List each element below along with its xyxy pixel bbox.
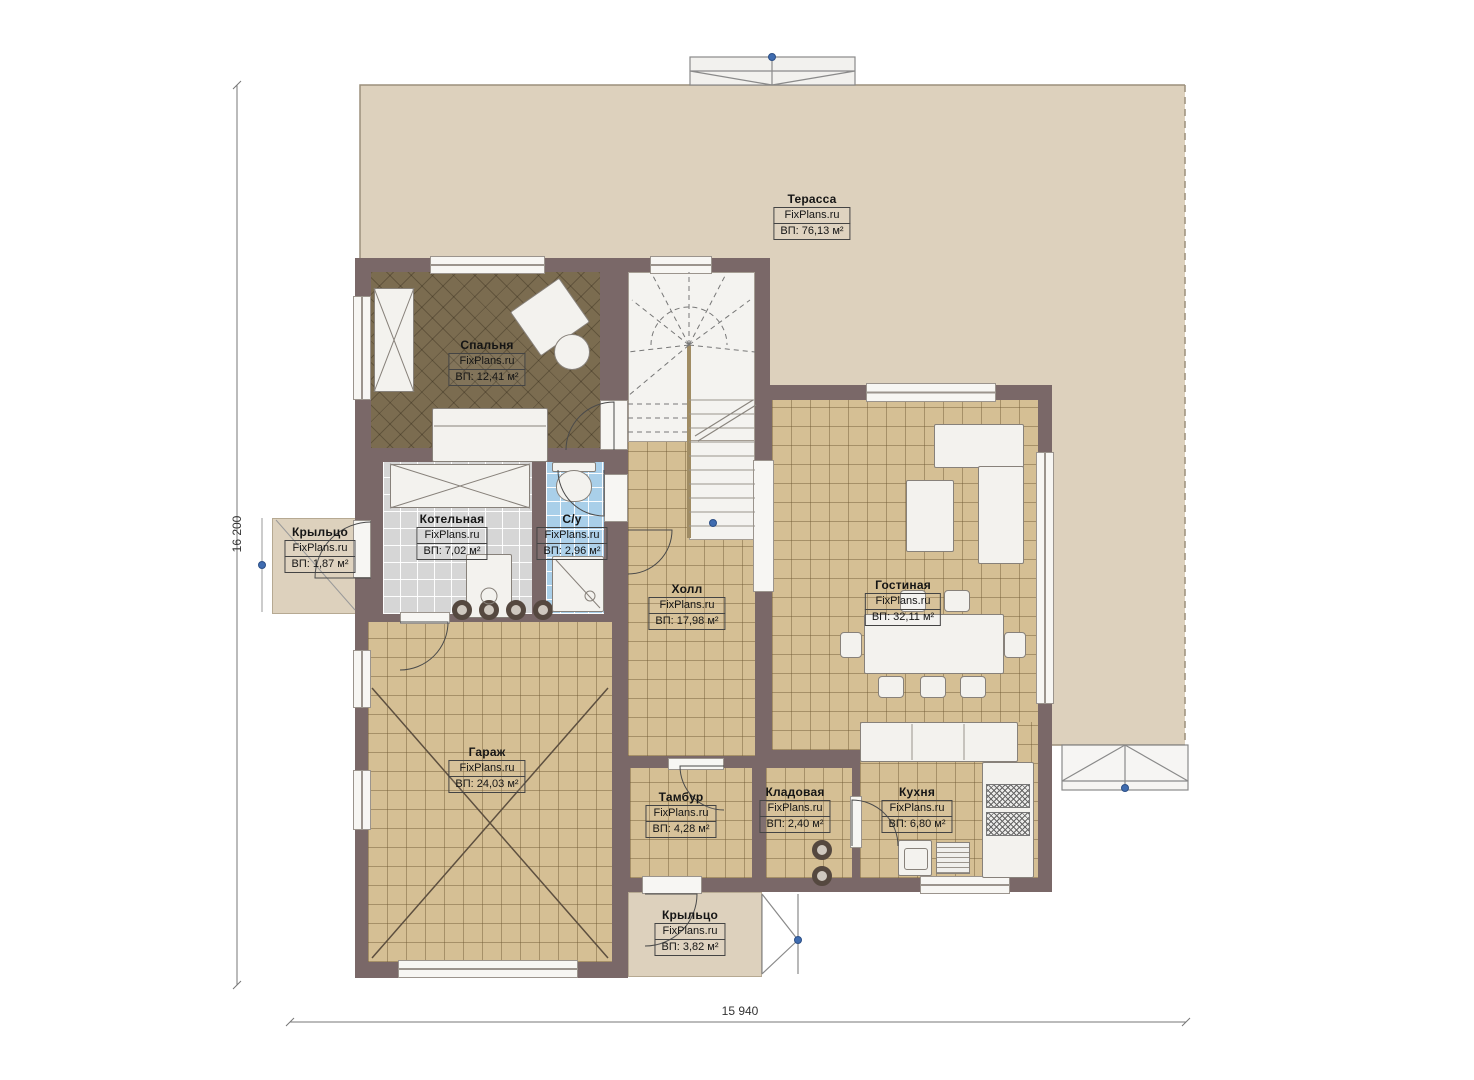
room-label-bedroom: Спальня FixPlans.ru ВП: 12,41 м² <box>448 338 525 386</box>
watermark: FixPlans.ru <box>881 800 952 817</box>
window-living-top <box>866 383 996 402</box>
marker-dot-stair <box>709 519 717 527</box>
floor-plan-canvas: Терасса FixPlans.ru ВП: 76,13 м² Спальня… <box>0 0 1474 1080</box>
window-stair-top <box>650 256 712 274</box>
door-opening-storage-kitchen <box>850 796 862 848</box>
room-name: Спальня <box>448 338 525 352</box>
kitchen-counter-top <box>860 722 1018 762</box>
door-opening-vestibule-porch <box>642 876 702 894</box>
kitchen-ring-2 <box>812 866 832 886</box>
garage-gate <box>398 960 578 978</box>
room-label-vestibule: Тамбур FixPlans.ru ВП: 4,28 м² <box>645 790 716 838</box>
room-label-bathroom: С/у FixPlans.ru ВП: 2,96 м² <box>536 512 607 560</box>
sofa-vertical <box>978 466 1024 564</box>
door-opening-bathroom <box>604 474 628 522</box>
watermark: FixPlans.ru <box>773 207 850 224</box>
dining-chair <box>920 676 946 698</box>
bedroom-side-table <box>554 334 590 370</box>
room-name: Кухня <box>881 785 952 799</box>
roof-marker-top <box>690 57 855 85</box>
door-opening-hall-vestibule <box>668 758 724 770</box>
watermark: FixPlans.ru <box>645 805 716 822</box>
door-opening-bedroom <box>600 400 628 450</box>
marker-dot-top <box>768 53 776 61</box>
marker-dot-porch <box>794 936 802 944</box>
dining-chair <box>840 632 862 658</box>
room-name: Крыльцо <box>654 908 725 922</box>
room-name: Холл <box>648 582 725 596</box>
room-area: ВП: 24,03 м² <box>448 776 525 793</box>
room-name: Котельная <box>416 512 487 526</box>
bedroom-wardrobe <box>374 288 414 392</box>
room-area: ВП: 6,80 м² <box>881 816 952 833</box>
dining-chair <box>960 676 986 698</box>
room-name: Гостиная <box>865 578 941 592</box>
boiler-meter-4 <box>533 600 553 620</box>
window-living-terrace <box>1036 452 1054 704</box>
window-bedroom-top <box>430 256 545 274</box>
room-area: ВП: 12,41 м² <box>448 369 525 386</box>
room-label-storage: Кладовая FixPlans.ru ВП: 2,40 м² <box>759 785 830 833</box>
boiler-cabinet <box>390 464 530 508</box>
shower-tray <box>552 556 604 612</box>
room-area: ВП: 2,96 м² <box>536 543 607 560</box>
room-area: ВП: 32,11 м² <box>865 609 941 626</box>
dining-chair <box>944 590 970 612</box>
room-label-garage: Гараж FixPlans.ru ВП: 24,03 м² <box>448 745 525 793</box>
room-area: ВП: 4,28 м² <box>645 821 716 838</box>
room-name: Кладовая <box>759 785 830 799</box>
dining-chair <box>1004 632 1026 658</box>
room-label-kitchen: Кухня FixPlans.ru ВП: 6,80 м² <box>881 785 952 833</box>
kitchen-ring-1 <box>812 840 832 860</box>
room-label-hall: Холл FixPlans.ru ВП: 17,98 м² <box>648 582 725 630</box>
room-label-boiler: Котельная FixPlans.ru ВП: 7,02 м² <box>416 512 487 560</box>
terrace-surface-mid <box>770 258 1185 387</box>
room-label-living: Гостиная FixPlans.ru ВП: 32,11 м² <box>865 578 941 626</box>
room-area: ВП: 2,40 м² <box>759 816 830 833</box>
coffee-table <box>906 480 954 552</box>
room-name: Крыльцо <box>284 525 355 539</box>
boiler-meter-3 <box>506 600 526 620</box>
room-name: С/у <box>536 512 607 526</box>
marker-dot-terrace-corner <box>1121 784 1129 792</box>
window-kitchen-bottom <box>920 876 1010 894</box>
room-label-porch-left: Крыльцо FixPlans.ru ВП: 1,87 м² <box>284 525 355 573</box>
marker-dot-porch-left <box>258 561 266 569</box>
room-area: ВП: 17,98 м² <box>648 613 725 630</box>
window-garage-left-1 <box>353 650 371 708</box>
room-area: ВП: 1,87 м² <box>284 556 355 573</box>
opening-hall-living <box>753 460 774 592</box>
boiler-meter-2 <box>479 600 499 620</box>
room-hall-floor <box>628 540 755 756</box>
terrace-surface-right <box>1052 387 1185 745</box>
room-label-porch-bottom: Крыльцо FixPlans.ru ВП: 3,82 м² <box>654 908 725 956</box>
room-name: Гараж <box>448 745 525 759</box>
watermark: FixPlans.ru <box>759 800 830 817</box>
watermark: FixPlans.ru <box>654 923 725 940</box>
watermark: FixPlans.ru <box>648 597 725 614</box>
dimension-height: 16 200 <box>230 494 244 574</box>
watermark: FixPlans.ru <box>865 593 941 610</box>
bedroom-sofa <box>432 408 548 462</box>
roof-marker-porch <box>762 894 798 974</box>
dining-chair <box>878 676 904 698</box>
stove-burners-bottom <box>986 812 1030 836</box>
room-stairwell-floor <box>628 272 755 442</box>
watermark: FixPlans.ru <box>284 540 355 557</box>
window-bedroom-left <box>353 296 371 400</box>
door-opening-porch-left <box>353 520 371 578</box>
watermark: FixPlans.ru <box>536 527 607 544</box>
toilet-bowl <box>556 470 592 502</box>
sink-drainer <box>936 842 970 874</box>
watermark: FixPlans.ru <box>448 353 525 370</box>
room-area: ВП: 7,02 м² <box>416 543 487 560</box>
watermark: FixPlans.ru <box>416 527 487 544</box>
room-name: Тамбур <box>645 790 716 804</box>
boiler-meter-1 <box>452 600 472 620</box>
dimension-width: 15 940 <box>703 1004 777 1018</box>
window-garage-left-2 <box>353 770 371 830</box>
room-stair-run-floor <box>689 440 755 540</box>
room-area: ВП: 76,13 м² <box>773 223 850 240</box>
room-name: Терасса <box>773 192 850 206</box>
watermark: FixPlans.ru <box>448 760 525 777</box>
stove-burners-top <box>986 784 1030 808</box>
room-area: ВП: 3,82 м² <box>654 939 725 956</box>
sink-basin <box>904 848 928 870</box>
room-label-terrace: Терасса FixPlans.ru ВП: 76,13 м² <box>773 192 850 240</box>
sofa-horizontal <box>934 424 1024 468</box>
door-opening-boiler-garage <box>400 612 450 624</box>
